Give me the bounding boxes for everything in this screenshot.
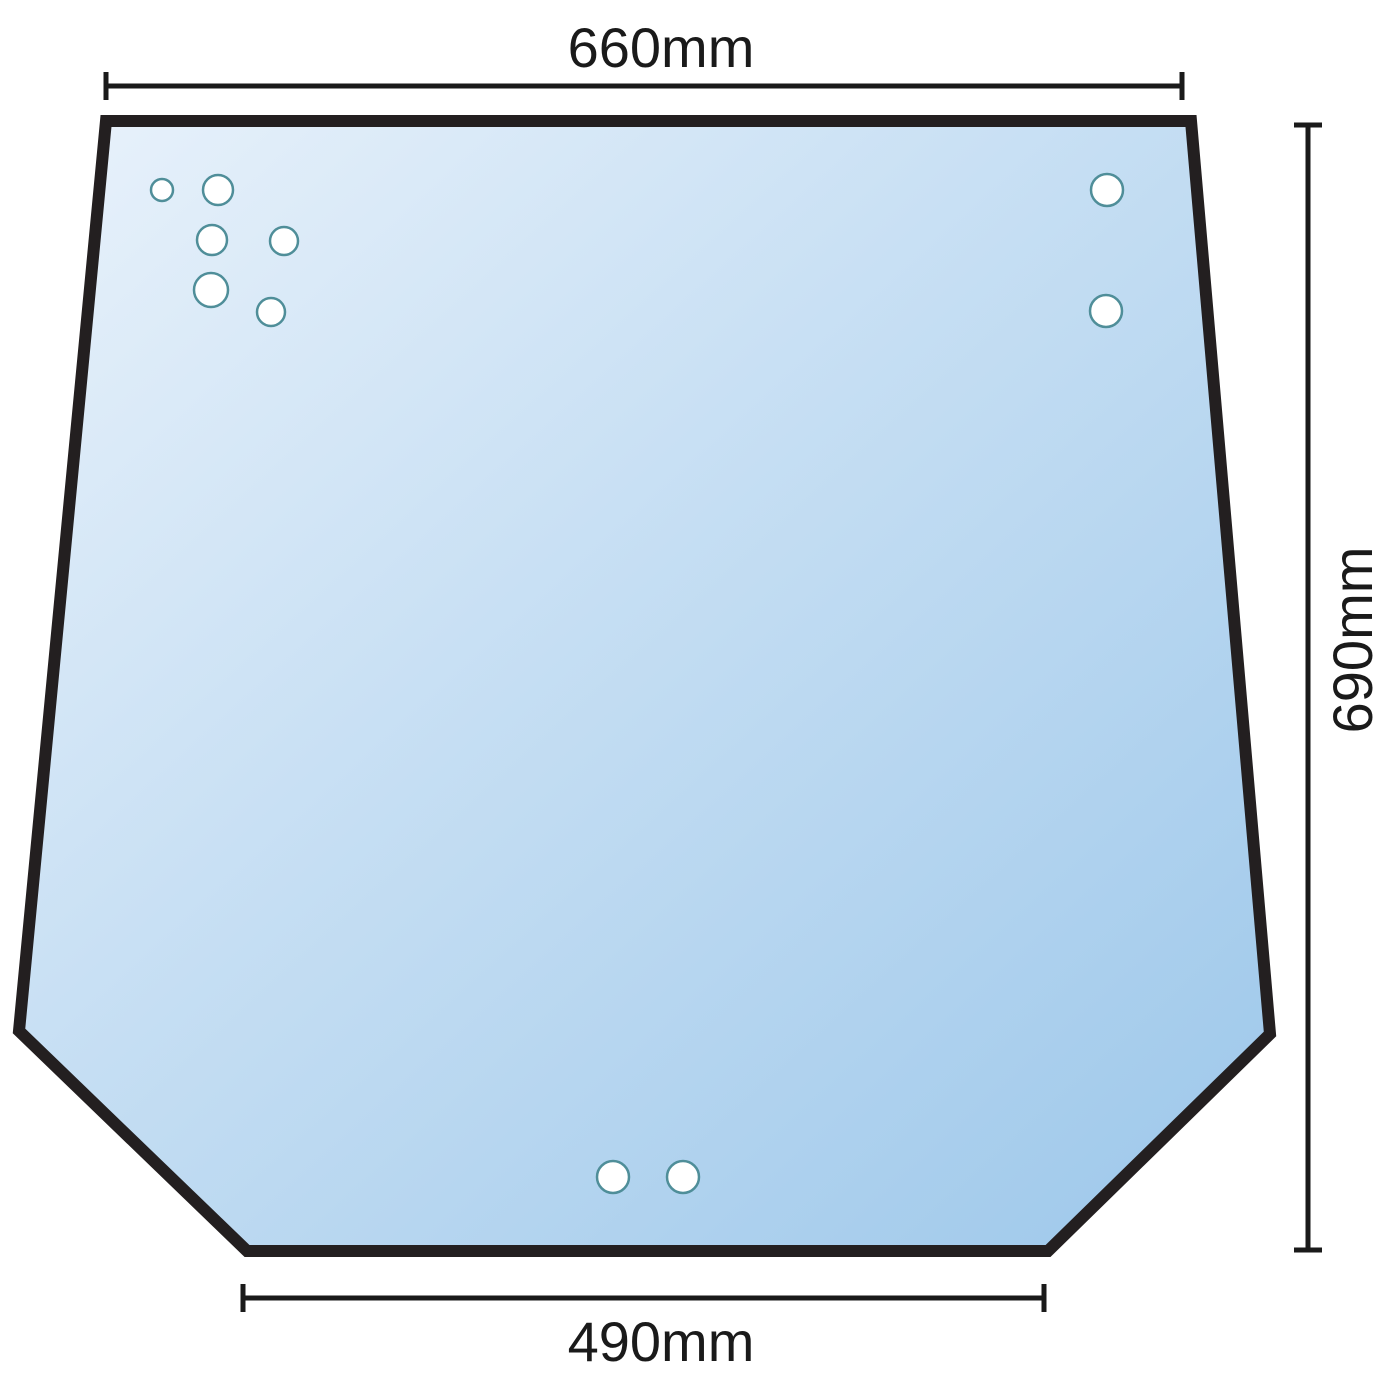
bottom-width-label: 490mm [568,1310,755,1373]
height-dimension: 690mm [1294,125,1384,1250]
mounting-hole-top-left-cluster [203,175,233,205]
mounting-hole-top-left-cluster [151,179,173,201]
mounting-hole-top-left-cluster [194,273,228,307]
mounting-hole-bottom-center-pair [597,1161,629,1193]
diagram-canvas: 660mm 690mm 490mm [0,0,1396,1385]
mounting-hole-top-right-pair [1090,295,1122,327]
height-label: 690mm [1321,547,1384,734]
bottom-width-dimension: 490mm [243,1284,1044,1373]
mounting-hole-top-right-pair [1091,174,1123,206]
mounting-hole-top-left-cluster [270,227,298,255]
mounting-hole-bottom-center-pair [667,1161,699,1193]
top-width-dimension: 660mm [106,16,1182,100]
mounting-hole-top-left-cluster [197,225,227,255]
diagram-stage: 660mm 690mm 490mm [0,0,1396,1385]
top-width-label: 660mm [568,16,755,79]
mounting-hole-top-left-cluster [257,298,285,326]
